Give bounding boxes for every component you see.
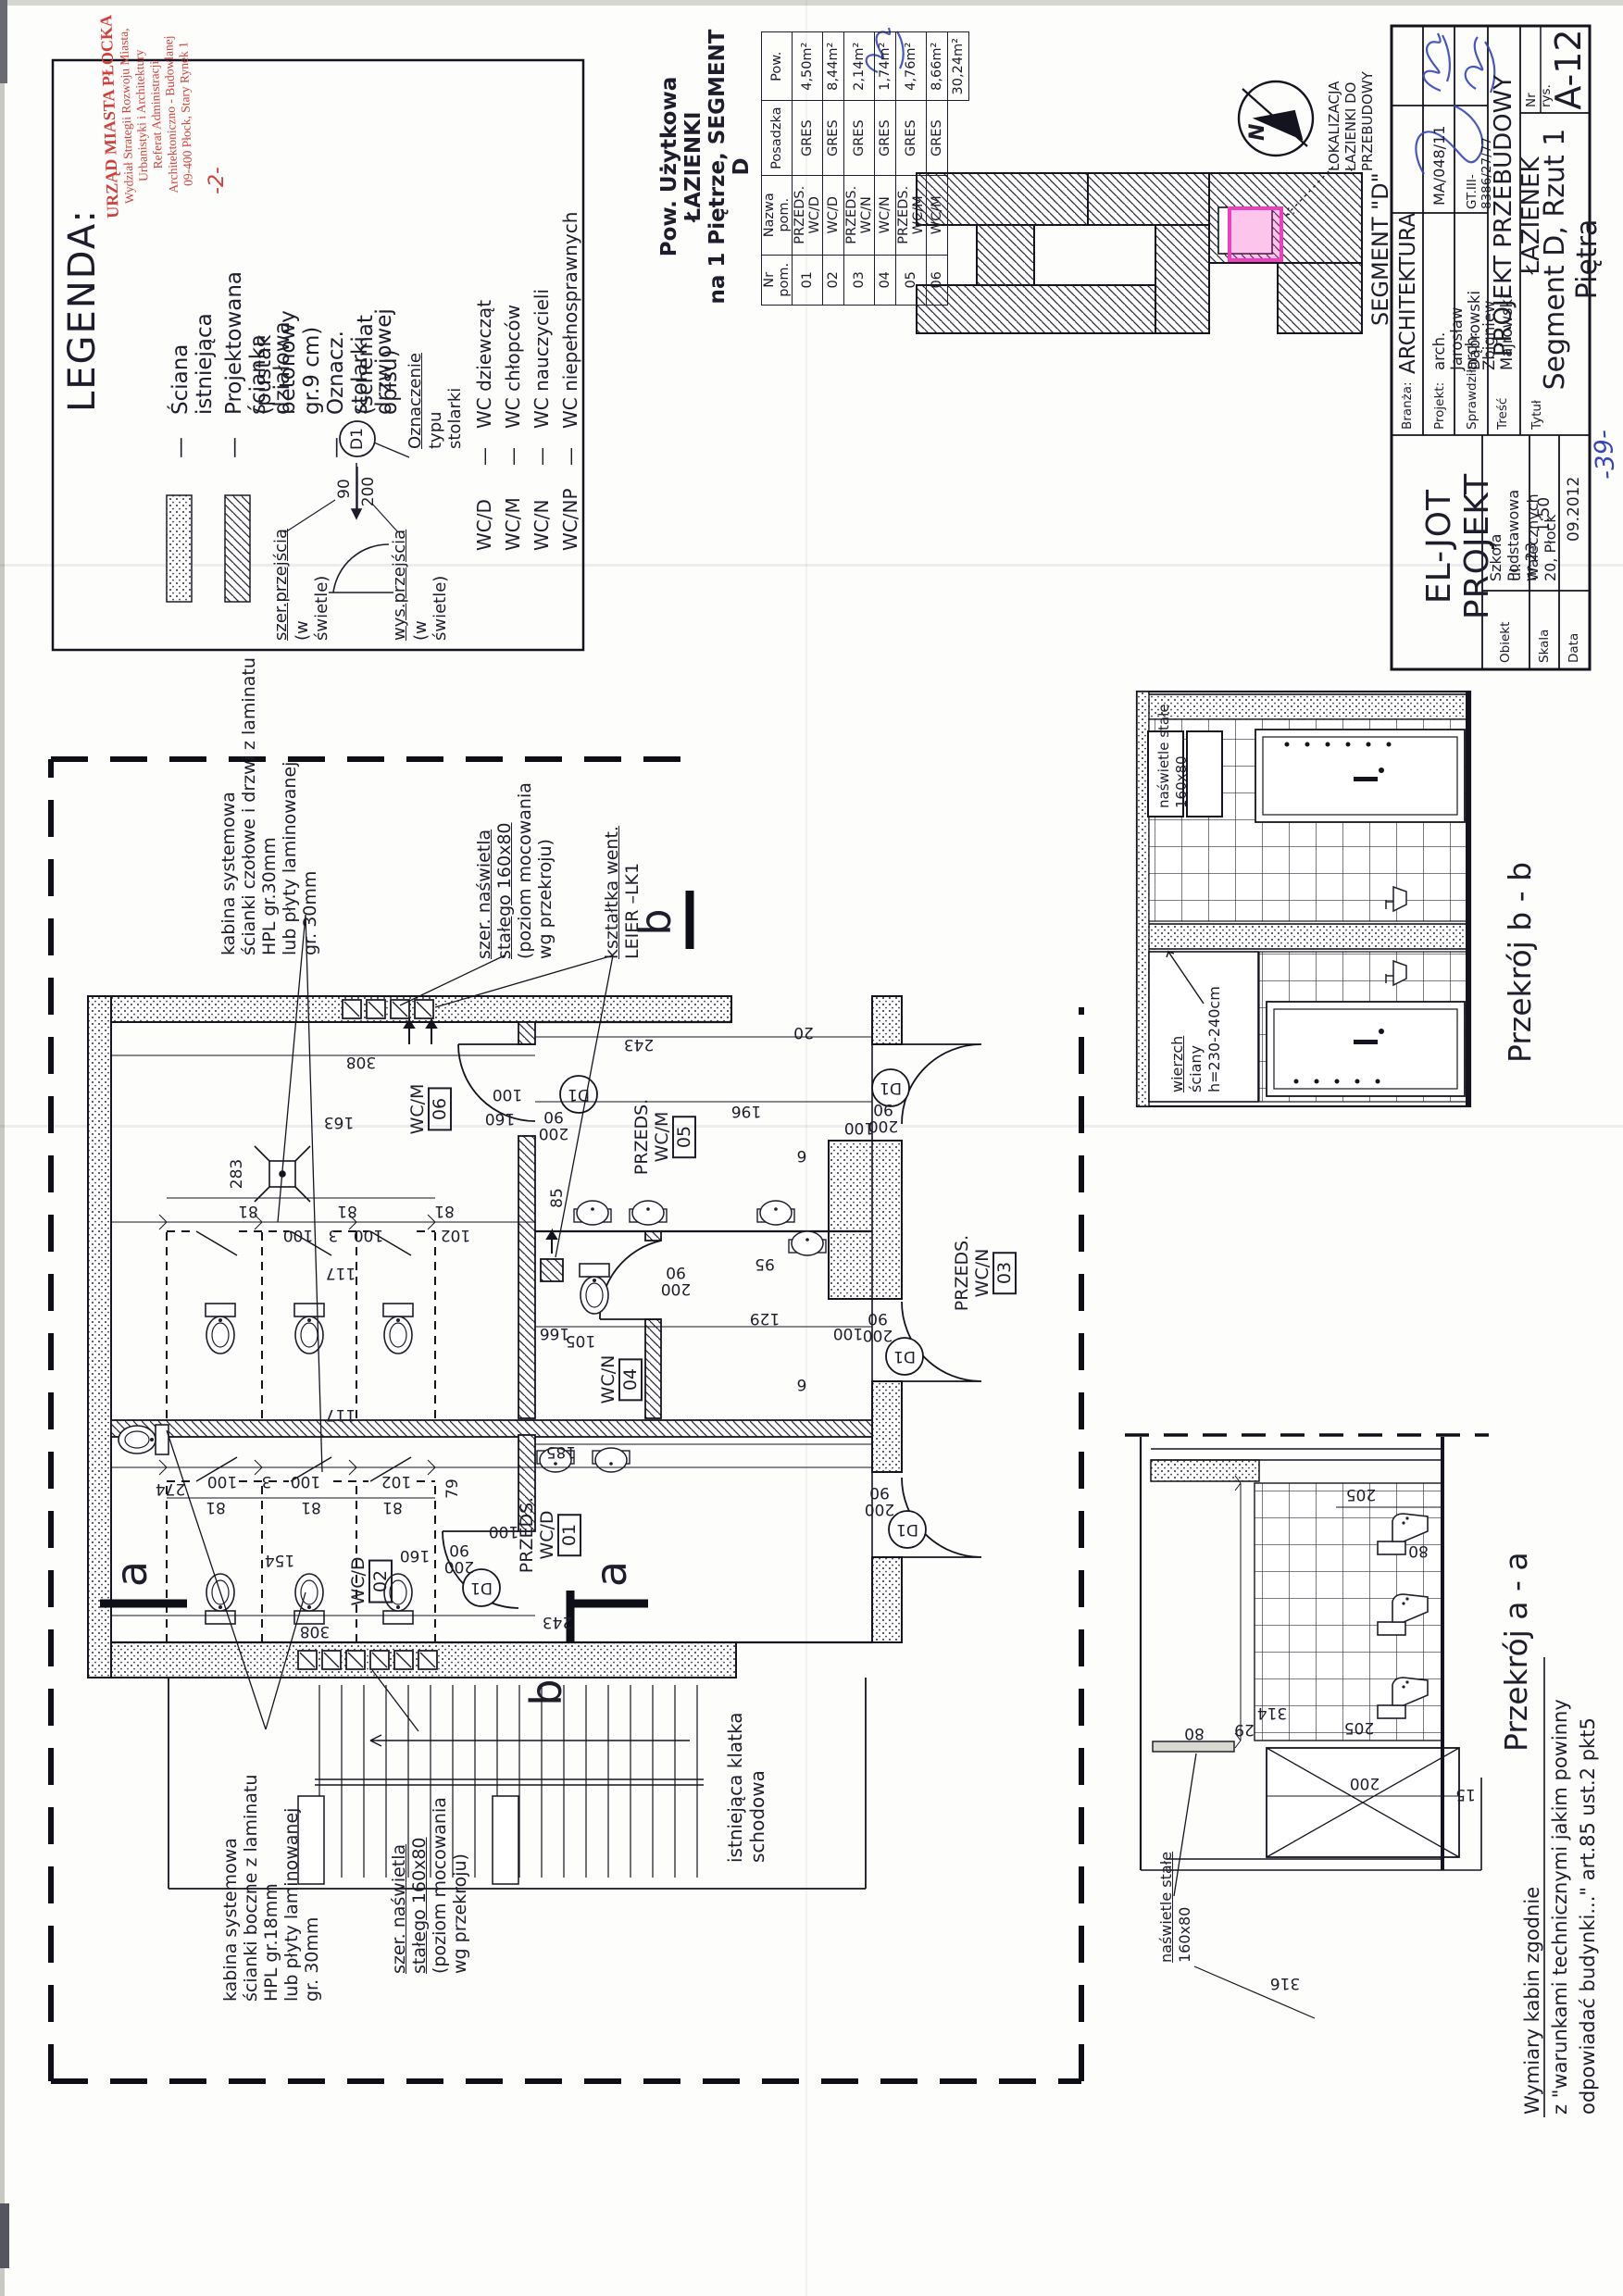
dim-label: 80 — [1408, 1541, 1429, 1560]
dim-label: 3 — [262, 1472, 272, 1491]
area-table-row: 06WC/MGRES8,66m² — [927, 32, 948, 306]
dim-label: 81 — [238, 1202, 258, 1220]
annotation-line: schodowa — [746, 1713, 768, 1864]
room-label-05: PRZEDS. WC/M05 — [631, 1099, 696, 1175]
annotation-line: szer. naświetla — [474, 782, 494, 959]
dim-label: 100 — [354, 1226, 383, 1244]
area-col-header: Nr pom. — [762, 255, 793, 305]
skala-value: 1:50 — [1535, 497, 1554, 532]
annotation-block: szer. naświetlastałego 160x80(poziom moc… — [474, 782, 556, 959]
fold-line-1 — [0, 1125, 1623, 1128]
annotation-line: szer. naświetla — [389, 1797, 409, 1974]
dim-label: 160 — [400, 1546, 430, 1565]
legend-oznaczenie: Oznaczenie — [406, 353, 425, 449]
area-cell: 01 — [793, 255, 823, 305]
annotation-line: ŁAZIENKI DO — [1342, 71, 1359, 171]
cabin-door-leafs — [196, 1231, 411, 1481]
annotation-line: lub płyty laminowanej — [280, 657, 300, 955]
obiekt-label: Obiekt — [1498, 622, 1513, 663]
annotation-line: wg przekroju) — [450, 1797, 470, 1974]
legend-title: LEGENDA: — [61, 208, 104, 412]
dim-label: 200 — [444, 1557, 474, 1576]
dim-label: 200 — [1350, 1774, 1380, 1792]
dim-label: 81 — [301, 1498, 321, 1516]
north-label: N — [1246, 124, 1269, 141]
annotation-block: kabina systemowaścianki czołowe i drzwi … — [218, 657, 320, 955]
annotation-line: ściany — [1187, 986, 1205, 1092]
area-cell: 03 — [844, 255, 875, 305]
dim-label: 90 — [873, 1100, 893, 1118]
annotation-line: HPL gr.30mm — [259, 657, 280, 955]
dim-label: 316 — [1270, 1974, 1300, 1992]
annotation-line: lub płyty laminowanej — [281, 1775, 302, 2002]
annotation-line: kabina systemowa — [220, 1775, 241, 2002]
section-aa — [1141, 1437, 1544, 2117]
area-table-total-row: 30,24m² — [948, 32, 969, 306]
legend-item-existing-wall: Ściana istniejąca — [169, 313, 217, 415]
area-cell: 8,44m² — [823, 32, 844, 101]
area-col-header: Pow. — [762, 32, 793, 101]
door-tag-label: D1 — [893, 1347, 916, 1366]
area-table: Pow. Użytkowa ŁAZIENKI na 1 Piętrze, SEG… — [657, 28, 969, 306]
annotation-line: wierzch — [1168, 986, 1187, 1092]
annotation-line: kabina systemowa — [218, 657, 239, 955]
annotation-line: istniejąca klatka — [724, 1713, 746, 1864]
area-col-header: Posadzka — [762, 101, 793, 175]
branza-label: Branża: — [1400, 381, 1415, 430]
annotation-line: stałego 160x80 — [494, 782, 515, 959]
dim-label: 200 — [661, 1279, 691, 1298]
sprawdzil-label: Sprawdził: — [1465, 365, 1479, 430]
annotation-block: naświetle stałe160x80 — [1157, 1852, 1194, 1963]
annotation-line: HPL gr.18mm — [261, 1775, 281, 2002]
legend-wys-2: (w świetle) — [411, 576, 450, 641]
dim-label: 102 — [441, 1226, 470, 1244]
dim-label: 81 — [382, 1498, 403, 1516]
projekt-nr: MA/048/11 — [1430, 126, 1448, 206]
area-cell: 06 — [927, 255, 948, 305]
annotation-line: ścianki boczne z laminatu — [241, 1775, 261, 2002]
area-cell: 02 — [823, 255, 844, 305]
area-cell: GRES — [823, 101, 844, 175]
annotation-block: SEGMENT "D" — [1368, 172, 1392, 326]
section-letter: a — [106, 1561, 156, 1587]
area-cell: 05 — [896, 255, 927, 305]
annotation-line: naświetle stałe — [1155, 704, 1173, 808]
annotation-line: LEIER –LK1 — [622, 826, 643, 959]
dim-label: 185 — [546, 1442, 576, 1461]
dim-label: 81 — [337, 1202, 357, 1220]
section-letter: b — [521, 1678, 571, 1705]
skala-label: Skala — [1537, 630, 1552, 663]
dim-label: 102 — [381, 1472, 411, 1491]
annotation-line: SEGMENT "D" — [1368, 172, 1392, 326]
data-value: 09.2012 — [1565, 477, 1583, 542]
annotation-line: kształtka went. — [602, 826, 622, 959]
area-cell: PRZEDS. WC/D — [793, 175, 823, 255]
annotation-line: Przekrój b - b — [1504, 862, 1537, 1063]
section-letter: a — [586, 1561, 636, 1587]
dim-label: 205 — [1346, 1485, 1376, 1504]
area-total-value: 30,24m² — [948, 32, 969, 101]
dim-label: 6 — [797, 1375, 807, 1393]
location-map — [917, 81, 1362, 333]
dim-label: 95 — [755, 1254, 775, 1273]
area-table-row: 03PRZEDS. WC/NGRES2,14m² — [844, 32, 875, 306]
dim-label: 154 — [265, 1551, 294, 1569]
annotation-line: Wymiary kabin zgodnie — [1518, 1699, 1546, 2115]
dim-label: 200 — [865, 1500, 894, 1518]
legend-wc-type-list: WC/D—WC dziewczątWC/M—WC chłopcówWC/N—WC… — [470, 212, 585, 551]
legend-swatch-new-wall — [225, 495, 250, 602]
area-cell: WC/M — [927, 175, 948, 255]
office-stamp: URZĄD MIASTA PŁOCKA Wydział Strategii Ro… — [96, 5, 197, 225]
dim-label: 117 — [326, 1405, 356, 1424]
dim-label: 243 — [624, 1035, 654, 1054]
dim-label: 200 — [539, 1124, 568, 1142]
annotation-line: PRZEBUDOWY — [1359, 71, 1376, 171]
legend-oznaczenie-2: typu stolarki — [426, 388, 465, 449]
door-tag-label: D1 — [568, 1085, 590, 1104]
area-cell: GRES — [793, 101, 823, 175]
branza-value: ARCHITEKTURA — [1396, 213, 1420, 374]
room-label-04: WC/N04 — [598, 1355, 643, 1404]
dim-label: 90 — [869, 1483, 890, 1502]
dim-label: 200 — [868, 1117, 898, 1135]
area-col-header: Nazwa pom. — [762, 175, 793, 255]
annotation-line: LOKALIZACJA — [1326, 71, 1342, 171]
dim-label: 90 — [868, 1309, 888, 1328]
annotation-line: (poziom mocowania — [430, 1797, 450, 1974]
door-tag-label: D1 — [896, 1520, 918, 1539]
area-cell: 04 — [875, 255, 896, 305]
area-table-title-2: na 1 Piętrze, SEGMENT D — [705, 28, 754, 306]
annotation-block: szer. naświetlastałego 160x80(poziom moc… — [389, 1797, 470, 1974]
wc-type-item: WC/N—WC nauczycieli — [528, 212, 556, 551]
dim-label: 15 — [1455, 1785, 1476, 1803]
wc-type-item: WC/NP—WC niepełnosprawnych — [556, 212, 585, 551]
annotation-block: kabina systemowaścianki boczne z laminat… — [220, 1775, 322, 2002]
door-tag-label: D1 — [470, 1578, 493, 1597]
door-tag-label: D1 — [880, 1079, 902, 1097]
annotation-block: kształtka went.LEIER –LK1 — [602, 826, 643, 959]
area-cell: 4,50m² — [793, 32, 823, 101]
dim-label: 81 — [434, 1202, 455, 1220]
annotation-line: naświetle stałe — [1157, 1852, 1176, 1963]
dim-label: 79 — [443, 1479, 462, 1499]
dim-label: 20 — [793, 1023, 814, 1042]
floor-plan — [88, 891, 981, 1889]
annotation-block: Przekrój b - b — [1504, 862, 1537, 1063]
dim-label: 90 — [335, 479, 354, 499]
dim-label: 80 — [1184, 1724, 1205, 1742]
area-table-row: 04WC/NGRES1,74m² — [875, 32, 896, 306]
dim-label: 81 — [206, 1498, 226, 1516]
annotation-block: naświetle stałe160x80 — [1155, 704, 1191, 808]
data-label: Data — [1567, 633, 1581, 663]
annotation-line: (poziom mocowania — [515, 782, 535, 959]
dim-label: 243 — [543, 1613, 572, 1631]
legend-szer: szer.przejścia — [271, 529, 291, 641]
area-cell: 2,14m² — [844, 32, 875, 101]
area-cell: GRES — [844, 101, 875, 175]
annotation-line: ścianki czołowe i drzwi z laminatu — [239, 657, 259, 955]
dim-label: 100 — [489, 1522, 518, 1541]
scan-edge-right — [0, 0, 1623, 6]
legend-szer-2: (w świetle) — [293, 576, 331, 641]
area-cell: 4,76m² — [896, 32, 927, 101]
annotation-line: gr. 30mm — [300, 657, 320, 955]
scan-edge-top — [0, 0, 5, 2296]
dim-label: 274 — [156, 1479, 185, 1498]
firm-name: EL-JOT PROJEKT — [1420, 435, 1496, 657]
area-table-row: 01PRZEDS. WC/DGRES4,50m² — [793, 32, 823, 306]
annotation-block: Przekrój a - a — [1500, 1552, 1533, 1752]
area-cell: WC/N — [875, 175, 896, 255]
dim-label: 314 — [1257, 1703, 1287, 1722]
north-arrow-icon — [1239, 81, 1313, 156]
dim-label: 117 — [326, 1264, 356, 1282]
scan-smudge-1 — [0, 2203, 9, 2268]
dim-label: 90 — [543, 1107, 564, 1126]
dim-label: 29 — [1234, 1720, 1255, 1739]
dim-label: 85 — [548, 1188, 567, 1208]
annotation-line: odpowiadać budynki..." art.85 ust.2 pkt5 — [1574, 1699, 1602, 2115]
dim-label: 100 — [207, 1472, 237, 1491]
area-table-header-row: Nr pom.Nazwa pom.PosadzkaPow. — [762, 32, 793, 306]
annotation-line: 160x80 — [1173, 704, 1191, 808]
dim-label: 90 — [666, 1263, 686, 1281]
dim-label: 100 — [493, 1085, 522, 1104]
dim-label: 200 — [359, 477, 378, 506]
legend-dash: — — [169, 437, 193, 458]
vent-fitting — [541, 1259, 563, 1281]
annotation-block: LOKALIZACJAŁAZIENKI DOPRZEBUDOWY — [1326, 71, 1376, 171]
handwritten-page-number: -39- — [1589, 429, 1621, 480]
annotation-line: Przekrój a - a — [1500, 1552, 1533, 1752]
area-cell: WC/D — [823, 175, 844, 255]
area-cell: PRZEDS. WC/M — [896, 175, 927, 255]
drawing-number: A-12 — [1548, 26, 1589, 113]
dim-label: 90 — [449, 1541, 469, 1559]
area-table-grid: Nr pom.Nazwa pom.PosadzkaPow. 01PRZEDS. … — [761, 31, 969, 306]
legend-swatch-existing-wall — [167, 495, 192, 602]
area-table-row: 05PRZEDS. WC/MGRES4,76m² — [896, 32, 927, 306]
dim-label: 3 — [329, 1226, 339, 1244]
area-cell: 1,74m² — [875, 32, 896, 101]
dim-label: 196 — [731, 1102, 761, 1120]
dim-label: 100 — [833, 1324, 863, 1342]
dim-label: 308 — [346, 1053, 376, 1071]
dim-label: 100 — [291, 1472, 320, 1491]
scan-smudge-2 — [0, 0, 7, 83]
area-table-title: Pow. Użytkowa ŁAZIENKI — [657, 28, 705, 306]
drawing-sheet: LEGENDA: URZĄD MIASTA PŁOCKA Wydział Str… — [0, 0, 1623, 2296]
dim-label: 105 — [566, 1331, 595, 1350]
room-label-03: PRZEDS. WC/N03 — [952, 1235, 1017, 1311]
annotation-block: wierzchścianyh=230-240cm — [1168, 986, 1224, 1092]
dim-label: 100 — [283, 1226, 313, 1244]
tytul-value: Segment D, Rzut 1 Piętra — [1539, 113, 1604, 406]
tresc-value: PROJEKT PRZEBUDOWY ŁAZIENEK — [1490, 26, 1545, 406]
annotation-line: h=230-240cm — [1205, 986, 1224, 1092]
annotation-block: istniejąca klatkaschodowa — [724, 1713, 768, 1864]
legend-wys: wys.przejścia — [390, 530, 409, 641]
annotation-line: 160x80 — [1176, 1852, 1194, 1963]
area-cell: 8,66m² — [927, 32, 948, 101]
dim-label: 205 — [1344, 1718, 1374, 1737]
room-label-06: WC/M06 — [407, 1084, 452, 1135]
annotation-line: wg przekroju) — [535, 782, 556, 959]
projekt-label: Projekt: — [1432, 382, 1447, 430]
dim-label: 6 — [797, 1146, 807, 1165]
dim-label: 129 — [750, 1309, 780, 1328]
legend-dash: — — [324, 437, 348, 458]
legend-item-new-wall-2: (pustak betonowy gr.9 cm) — [252, 310, 324, 415]
area-cell: GRES — [896, 101, 927, 175]
dim-label: 160 — [485, 1109, 515, 1128]
room-label-02: WC/D02 — [348, 1556, 393, 1605]
location-highlight — [1230, 208, 1281, 260]
area-table-row: 02WC/DGRES8,44m² — [823, 32, 844, 306]
area-cell: GRES — [875, 101, 896, 175]
wc-type-item: WC/D—WC dziewcząt — [470, 212, 499, 551]
annotation-line: z "warunkami technicznymi jakim powinny — [1546, 1699, 1574, 2115]
area-cell: GRES — [927, 101, 948, 175]
legend-item-doors-2: (schemat opisu) — [354, 315, 402, 415]
annotation-line: stałego 160x80 — [409, 1797, 430, 1974]
wc-type-item: WC/M—WC chłopców — [499, 212, 528, 551]
dim-label: 200 — [863, 1326, 893, 1344]
door-tag-label: D1 — [348, 428, 367, 450]
dim-label: 308 — [300, 1622, 330, 1641]
dim-label: 283 — [228, 1159, 246, 1189]
area-cell: PRZEDS. WC/N — [844, 175, 875, 255]
legend-dash: — — [222, 437, 246, 458]
annotation-block: Wymiary kabin zgodniez "warunkami techni… — [1518, 1699, 1602, 2115]
dim-label: 163 — [324, 1113, 354, 1131]
stamp-handwritten-page: -2- — [206, 167, 229, 194]
annotation-line: gr. 30mm — [302, 1775, 322, 2002]
room-label-01: PRZEDS. WC/D01 — [517, 1497, 581, 1573]
